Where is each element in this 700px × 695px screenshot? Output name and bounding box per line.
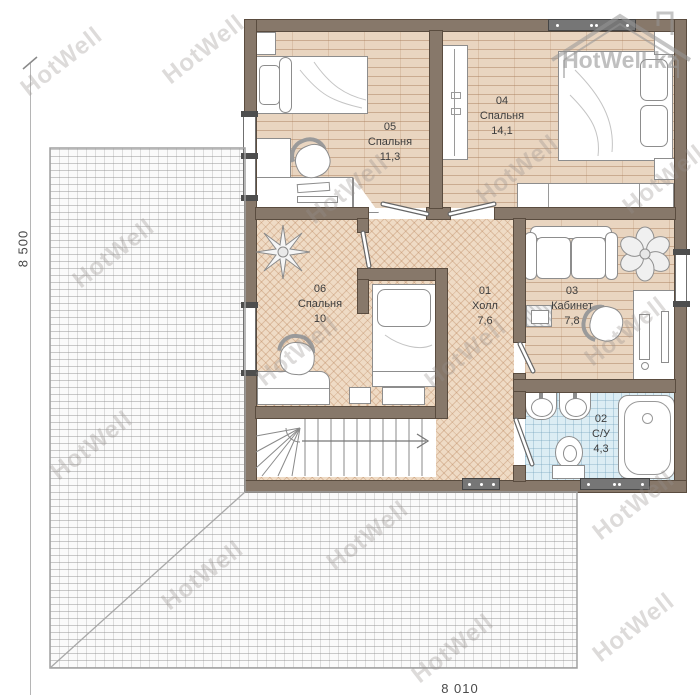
room-label-bathroom02: 02 С/У 4,3 [566,412,636,457]
room-area: 7,6 [450,314,520,329]
wall-exterior-left [245,20,256,492]
window-cap [241,195,258,201]
window-cap [241,302,258,308]
pillow [640,105,668,147]
pillow [259,65,280,105]
nightstand [349,387,371,404]
room-name: Спальня [467,109,537,124]
dresser-bedroom04 [517,183,674,208]
wall-mid-pier [427,208,450,219]
wall-mid-right [495,208,675,219]
wall-bathroom-left-lower [514,466,525,481]
wall-bed-niche-right [436,269,447,418]
room-area: 7,8 [537,314,607,329]
window-study03 [675,253,687,303]
window-cap [241,370,258,376]
bed-footboard [372,371,437,387]
room-area: 14,1 [467,124,537,139]
room-number: 03 [537,284,607,299]
sofa-study03 [524,226,618,282]
wardrobe-bedroom04 [442,45,468,160]
room-number: 02 [566,412,636,427]
room-name: Спальня [285,297,355,312]
chair-bedroom06 [274,333,319,376]
dimension-bottom-label: 8 010 [410,681,510,695]
blanket-roll [279,57,292,113]
sink [525,392,557,420]
toilet-tank [552,465,585,479]
pillow [377,289,431,327]
nightstand [654,158,675,180]
room-number: 06 [285,282,355,297]
wall-bed-niche-top [358,269,447,280]
watermark-text: HotWell [588,587,681,668]
pillow [640,59,668,101]
chair-seat [279,341,316,376]
floor-plan-canvas: 8 500 8 010 [0,0,700,695]
window-cap [241,111,258,117]
window-bedroom04 [548,19,636,31]
desk-study03 [633,290,675,381]
room-number: 01 [450,284,520,299]
room-name: Холл [450,299,520,314]
room-label-bedroom05: 05 Спальня 11,3 [355,120,425,165]
wall-door06-stub [358,219,368,232]
desk-printer [297,196,338,203]
room-number: 04 [467,94,537,109]
bed-chest [382,387,425,405]
watermark-text: HotWell [158,9,251,90]
wall-bathroom-left-upper [514,392,525,418]
room-name: Кабинет [537,299,607,314]
nightstand [256,32,276,55]
room-label-bedroom06: 06 Спальня 10 [285,282,355,327]
wall-staircase [256,407,447,418]
room-name: С/У [566,427,636,442]
dimension-line-left [30,62,31,695]
staircase-area [256,418,436,477]
window-bedroom06 [243,306,256,372]
room-label-bedroom04: 04 Спальня 14,1 [467,94,537,139]
dimension-left-label: 8 500 [16,214,31,284]
room-label-hall01: 01 Холл 7,6 [450,284,520,329]
wall-study-bathroom [514,380,675,392]
window-cap [241,153,258,159]
nightstand [654,31,675,55]
room-area: 4,3 [566,442,636,457]
window-cap [673,301,690,307]
desk-bedroom06 [257,371,330,405]
room-area: 11,3 [355,150,425,165]
window-hall [462,478,500,490]
room-name: Спальня [355,135,425,150]
window-cap [673,249,690,255]
room-number: 05 [355,120,425,135]
wall-mid-left [256,208,368,219]
room-area: 10 [285,312,355,327]
wall-bedroom05-04 [430,31,442,208]
window-bathroom [580,478,650,490]
wall-bed-niche-stub [358,280,368,313]
room-label-study03: 03 Кабинет 7,8 [537,284,607,329]
